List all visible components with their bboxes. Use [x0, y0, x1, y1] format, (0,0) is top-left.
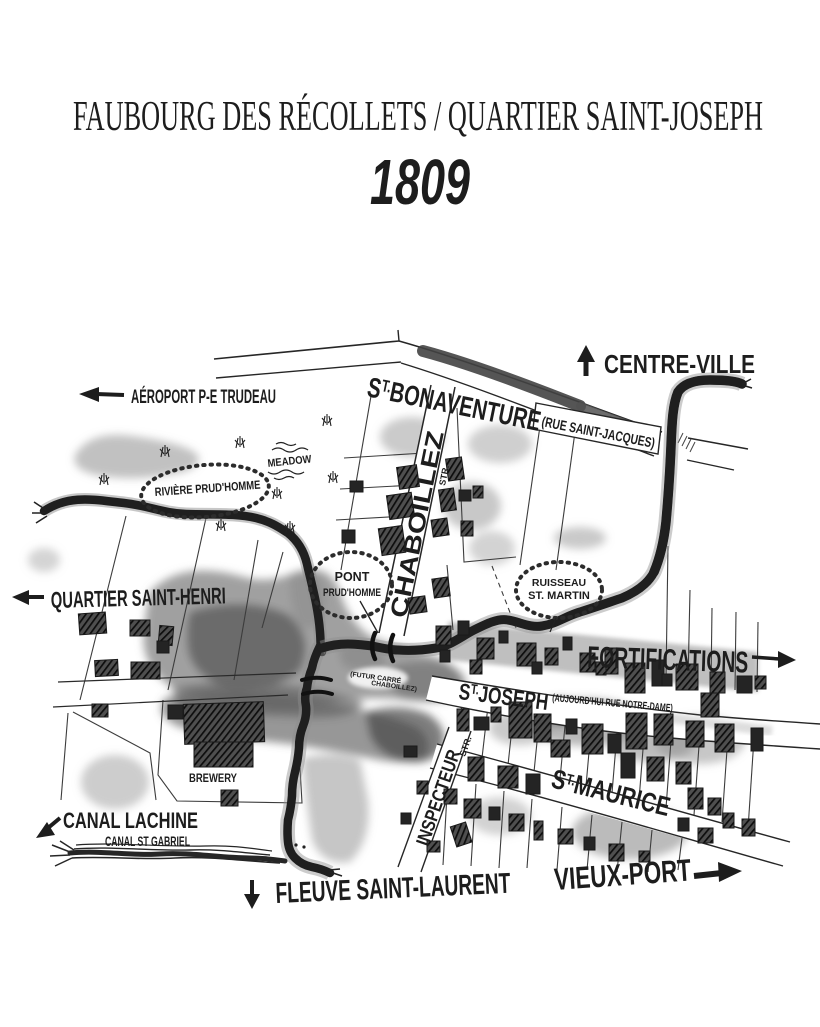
svg-text:CENTRE-VILLE: CENTRE-VILLE: [604, 349, 755, 379]
svg-text:BREWERY: BREWERY: [189, 773, 237, 785]
svg-text:1809: 1809: [370, 146, 470, 218]
svg-text:CANAL LACHINE: CANAL LACHINE: [63, 808, 198, 833]
svg-text:AÉROPORT P-E TRUDEAU: AÉROPORT P-E TRUDEAU: [131, 385, 276, 408]
svg-text:RUISSEAU: RUISSEAU: [532, 577, 586, 589]
svg-text:FAUBOURG DES RÉCOLLETS / QUART: FAUBOURG DES RÉCOLLETS / QUARTIER SAINT-…: [73, 93, 763, 140]
svg-text:CANAL ST GABRIEL: CANAL ST GABRIEL: [105, 834, 190, 849]
svg-text:PONT: PONT: [335, 570, 370, 584]
svg-text:ST. MARTIN: ST. MARTIN: [528, 590, 590, 602]
svg-text:QUARTIER SAINT-HENRI: QUARTIER SAINT-HENRI: [50, 582, 226, 613]
svg-text:PRUD'HOMME: PRUD'HOMME: [323, 587, 381, 599]
svg-text:FORTIFICATIONS: FORTIFICATIONS: [587, 641, 749, 680]
